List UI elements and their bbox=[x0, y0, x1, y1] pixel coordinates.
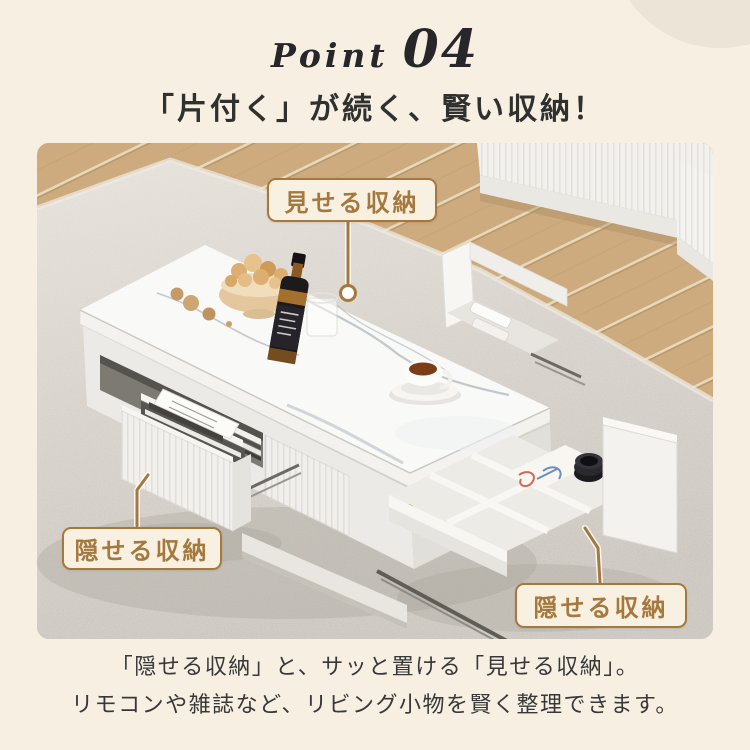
section-heading: 「片付く」が続く、賢い収納！ bbox=[0, 84, 750, 128]
point-word: Point bbox=[271, 36, 389, 75]
badge-hide-storage-left: 隠せる収納 bbox=[62, 527, 222, 570]
badge-hide-storage-right: 隠せる収納 bbox=[515, 583, 687, 628]
badge-show-storage: 見せる収納 bbox=[267, 178, 437, 222]
caption-line-2: リモコンや雑誌など、リビング小物を賢く整理できます。 bbox=[0, 686, 750, 724]
point-label-row: Point 04 bbox=[0, 24, 750, 76]
caption-line-1: 「隠せる収納」と、サッと置ける「見せる収納」。 bbox=[0, 648, 750, 686]
caption-text: 「隠せる収納」と、サッと置ける「見せる収納」。 リモコンや雑誌など、リビング小物… bbox=[0, 648, 750, 724]
page: Point 04 「片付く」が続く、賢い収納！ bbox=[0, 0, 750, 750]
section-header: Point 04 「片付く」が続く、賢い収納！ bbox=[0, 24, 750, 128]
point-number: 04 bbox=[403, 24, 479, 76]
product-photo-coffee-table: 見せる収納 隠せる収納 隠せる収納 bbox=[37, 143, 713, 639]
